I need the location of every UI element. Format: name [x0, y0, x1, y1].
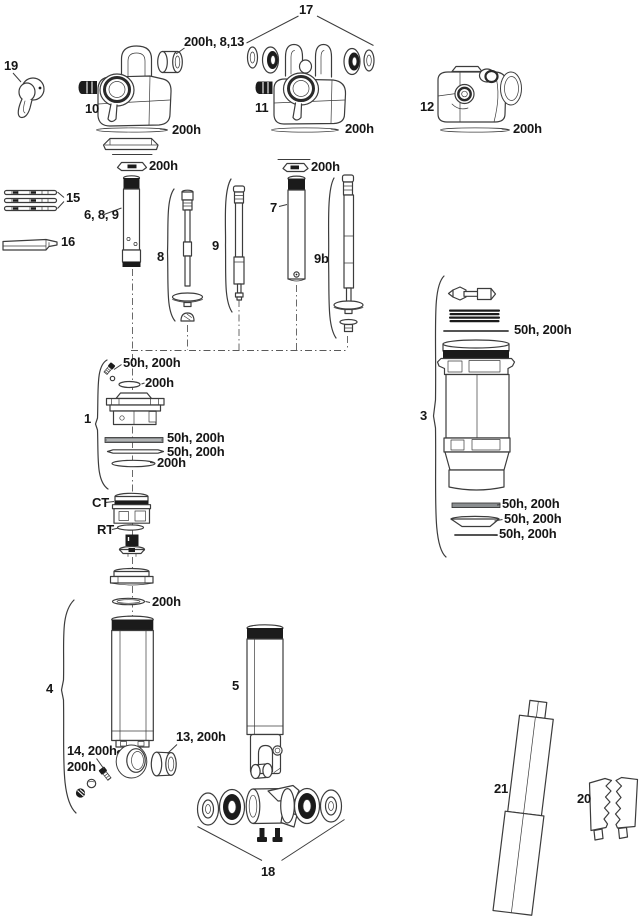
part-11-shaft-rod	[272, 128, 339, 132]
centerlines	[131, 269, 348, 616]
part-20-clamp-blocks	[590, 778, 638, 841]
part-18-mounting-hardware	[198, 786, 345, 861]
part-12-shaft-rod	[441, 128, 510, 132]
part-3-wave-washers	[449, 310, 500, 323]
label-ct: CT	[92, 495, 109, 510]
label-p1-oring: 200h	[145, 375, 174, 390]
part-10-shaft-rod	[97, 128, 168, 132]
label-rod-12: 200h	[513, 121, 542, 136]
label-part-21: 21	[494, 781, 508, 796]
part-12-reservoir-head	[438, 67, 522, 123]
label-p1-screw: 50h, 200h	[123, 355, 181, 370]
part-7-shaft-tube	[279, 176, 305, 281]
label-part-1: 1	[84, 411, 91, 426]
label-part-689: 6, 8, 9	[84, 207, 119, 222]
part-5-shock-body	[247, 625, 283, 774]
label-rt: RT	[97, 522, 114, 537]
label-p4-oring: 200h	[152, 594, 181, 609]
part-16-plate	[3, 240, 57, 251]
part-4-shock-body	[62, 600, 154, 813]
label-part-19: 19	[4, 58, 18, 73]
label-part-9: 9	[212, 238, 219, 253]
label-part-13: 13, 200h	[176, 729, 226, 744]
label-p3-seal3: 50h, 200h	[499, 526, 557, 541]
part-10-valve-plate	[104, 139, 159, 155]
label-part-17: 17	[299, 2, 313, 17]
part-4-top-spacers	[111, 569, 154, 605]
label-part-7: 7	[270, 200, 277, 215]
label-p4-ball: 200h	[67, 759, 96, 774]
label-p1-seal1: 50h, 200h	[167, 430, 225, 445]
part-13-bushing	[151, 745, 177, 776]
label-part-4: 4	[46, 681, 54, 696]
part-9-shaft-assembly	[225, 179, 244, 312]
part-8-shaft-assembly	[168, 189, 203, 321]
label-part-12: 12	[420, 99, 434, 114]
part-9b-shaft-assembly	[329, 175, 364, 338]
diagram-canvas: 17 200h, 8,13 19 10 11 12 200h 200h 200h…	[0, 0, 640, 917]
label-p3-rod: 50h, 200h	[514, 322, 572, 337]
label-part-10: 10	[85, 101, 99, 116]
label-seal-11: 200h	[311, 159, 340, 174]
label-part-16: 16	[61, 234, 75, 249]
part-18-bolts	[257, 828, 283, 842]
label-rod-11: 200h	[345, 121, 374, 136]
label-rod-10: 200h	[172, 122, 201, 137]
part-21-body-tool	[493, 699, 558, 915]
label-p3-seal1: 50h, 200h	[502, 496, 560, 511]
part-19-remote-lever	[18, 78, 44, 118]
label-part-8: 8	[157, 249, 164, 264]
part-bushing-8-13	[158, 48, 185, 73]
label-part-18: 18	[261, 864, 275, 879]
part-3-air-can-assembly	[434, 276, 515, 557]
label-part-14: 14, 200h	[67, 743, 117, 758]
label-part-5: 5	[232, 678, 239, 693]
exploded-parts-diagram-page: 17 200h, 8,13 19 10 11 12 200h 200h 200h…	[0, 0, 640, 917]
label-part-9b: 9b	[314, 251, 329, 266]
label-part-11: 11	[255, 100, 268, 115]
label-seal-10: 200h	[149, 158, 178, 173]
label-p1-oring2: 200h	[157, 455, 186, 470]
part-11-seal-head	[278, 160, 310, 172]
label-part-3: 3	[420, 408, 427, 423]
label-p3-seal2: 50h, 200h	[504, 511, 562, 526]
part-10-seal-head	[118, 163, 147, 171]
label-part-15: 15	[66, 190, 80, 205]
label-part-20: 20	[577, 791, 591, 806]
label-bushing-8-13: 200h, 8,13	[184, 34, 244, 49]
part-15-shim-stack	[5, 191, 65, 211]
